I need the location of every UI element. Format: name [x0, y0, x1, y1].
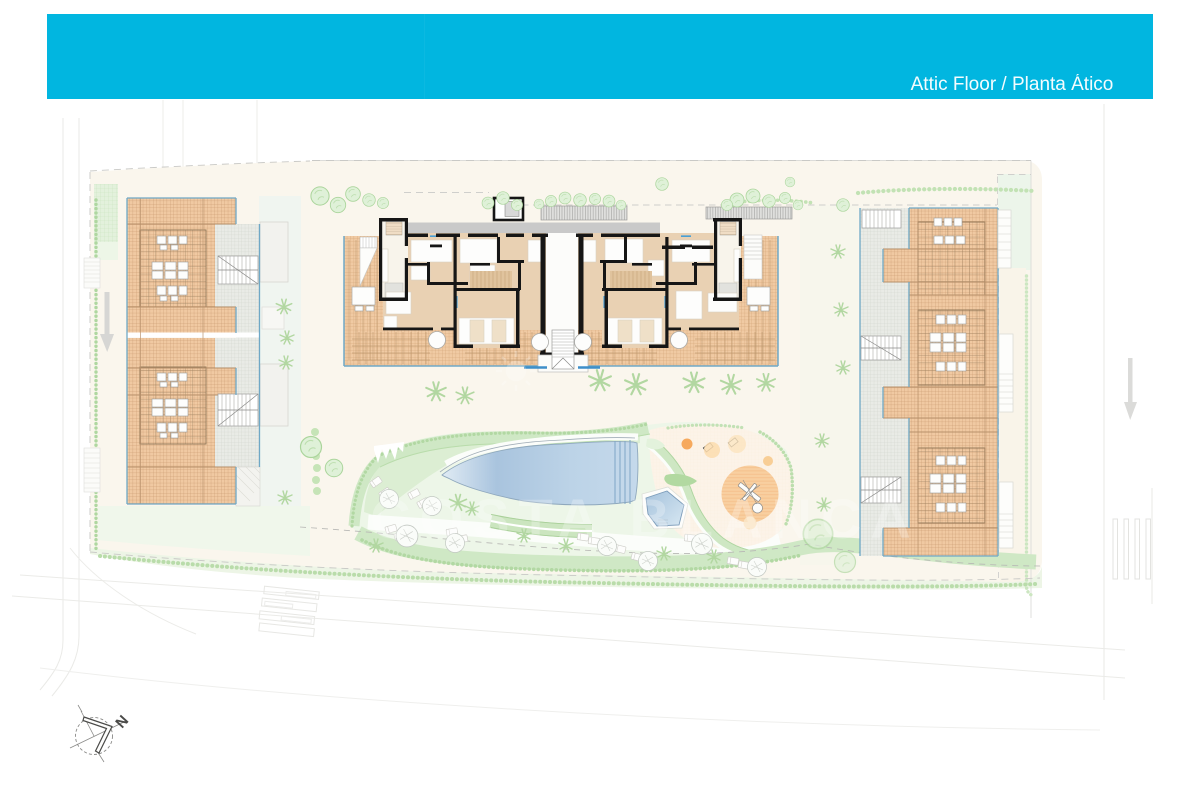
- svg-text:Attic Floor / Planta Ático: Attic Floor / Planta Ático: [911, 74, 1114, 95]
- svg-text:COSTA BLANCA: COSTA BLANCA: [370, 487, 920, 550]
